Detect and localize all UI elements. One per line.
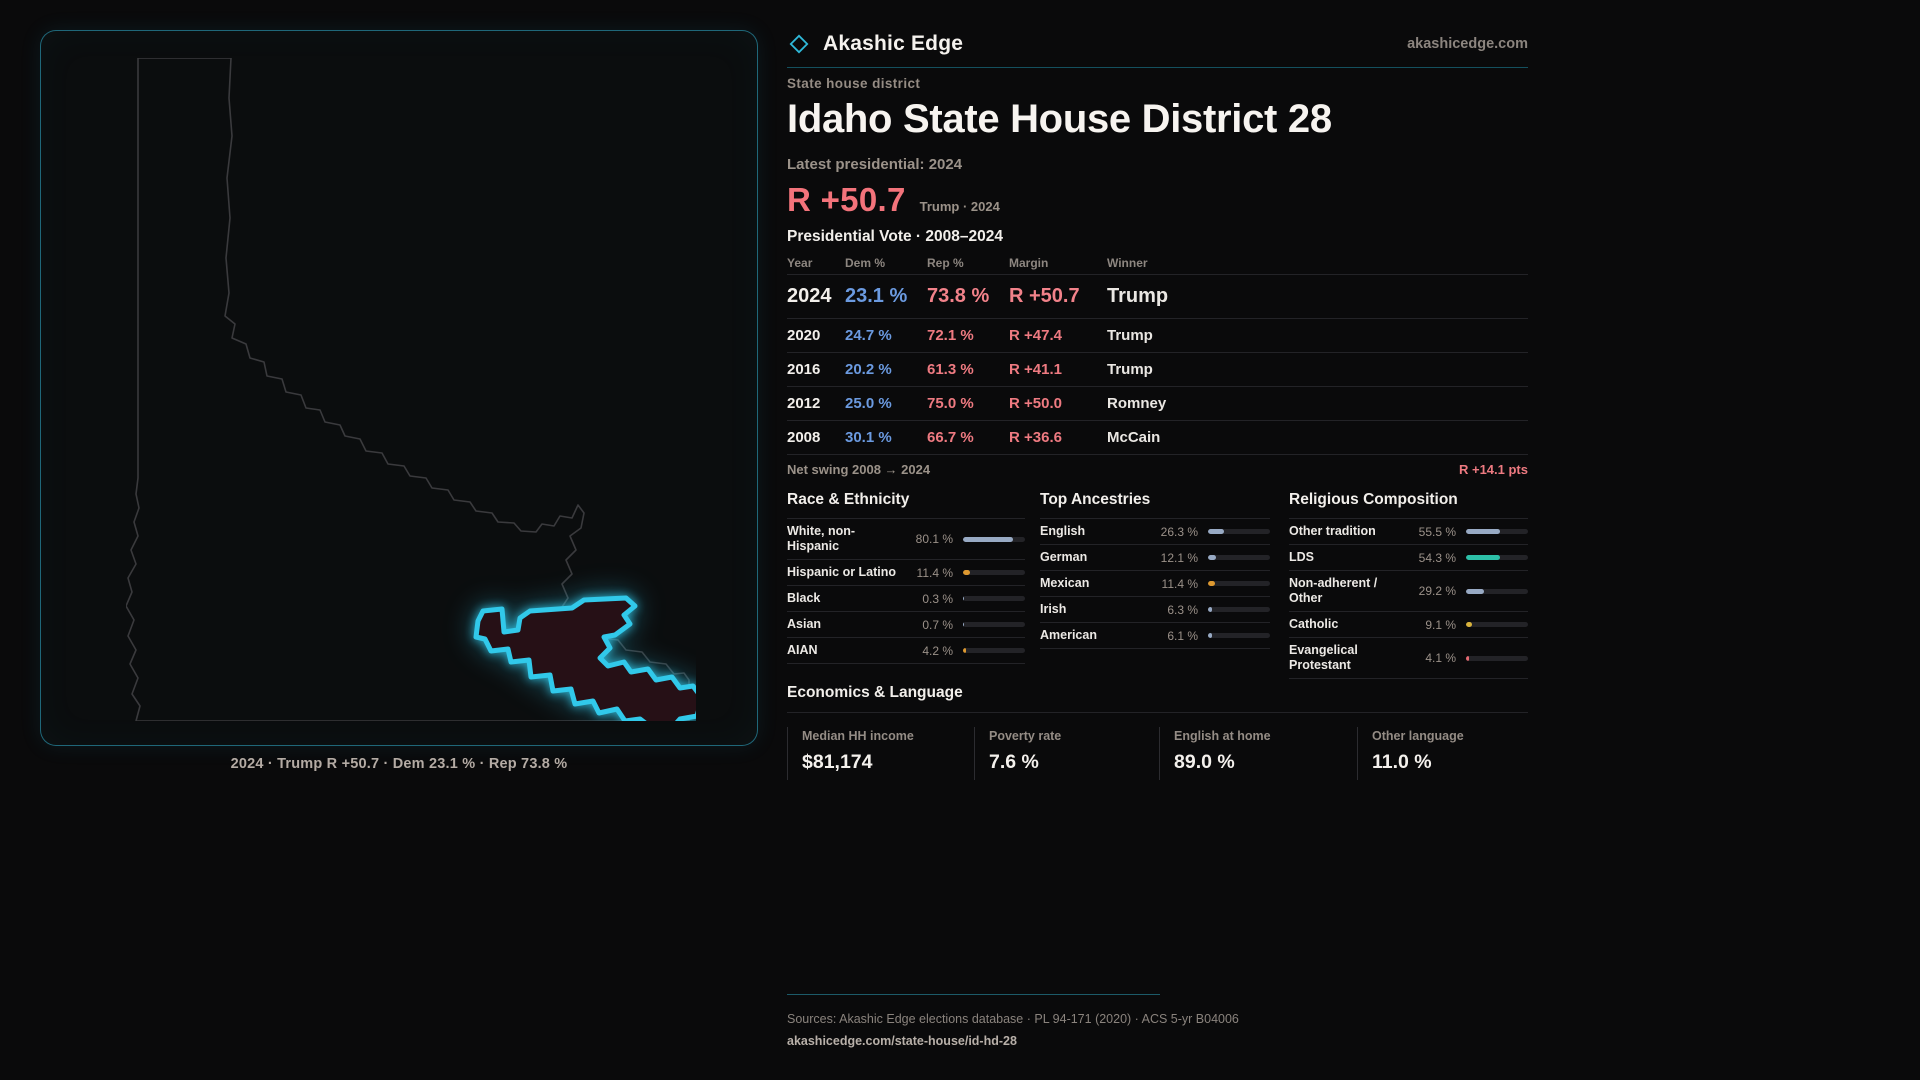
brand-name: Akashic Edge [823,32,963,56]
bar-track [1208,633,1270,638]
row-label: American [1040,628,1158,643]
stat-label: Median HH income [802,729,964,743]
map-panel [40,30,758,746]
stat-median-hh-income: Median HH income $81,174 [787,727,974,780]
list-item: English 26.3 % [1040,519,1270,545]
cell-rep: 73.8 % [927,285,1009,308]
cell-winner: McCain [1107,429,1528,446]
bar-fill [1466,529,1500,534]
stat-value: 89.0 % [1174,751,1347,774]
row-value: 6.1 % [1158,629,1208,643]
stats-row: Median HH income $81,174 Poverty rate 7.… [787,727,1528,780]
row-label: Evangelical Protestant [1289,643,1416,673]
row-value: 54.3 % [1416,551,1466,565]
cell-margin: R +50.0 [1009,395,1107,412]
list-item: White, non-Hispanic 80.1 % [787,519,1025,560]
diamond-icon [787,32,811,56]
net-swing-label: Net swing 2008 → 2024 [787,462,930,477]
row-value: 6.3 % [1158,603,1208,617]
bar-track [963,648,1025,653]
table-header: Year Dem % Rep % Margin Winner [787,252,1528,274]
row-label: LDS [1289,550,1416,565]
row-value: 4.1 % [1416,651,1466,665]
cell-dem: 20.2 % [845,361,927,378]
list-item: Evangelical Protestant 4.1 % [1289,638,1528,679]
sources-text: Sources: Akashic Edge elections database… [787,1012,1239,1026]
data-panel: Akashic Edge akashicedge.com State house… [787,0,1528,1080]
headline-margin: R +50.7 Trump · 2024 [787,181,1000,219]
margin-context: Trump · 2024 [920,199,1000,219]
row-value: 11.4 % [1158,577,1208,591]
cell-margin: R +50.7 [1009,285,1107,308]
table-row: 2016 20.2 % 61.3 % R +41.1 Trump [787,352,1528,386]
brand-header: Akashic Edge akashicedge.com [787,27,1528,61]
section-top-ancestries: Top Ancestries English 26.3 % German 12.… [1040,491,1270,679]
bar-fill [1466,589,1484,594]
bar-fill [1466,656,1469,661]
bar-track [1208,581,1270,586]
cell-year: 2024 [787,285,845,308]
bar-fill [1208,555,1216,560]
section-title: Race & Ethnicity [787,491,1025,519]
site-link[interactable]: akashicedge.com [1407,36,1528,52]
list-item: LDS 54.3 % [1289,545,1528,571]
map-caption: 2024 · Trump R +50.7 · Dem 23.1 % · Rep … [40,756,758,772]
bar-track [963,622,1025,627]
col-winner: Winner [1107,256,1528,270]
bar-track [1466,529,1528,534]
col-rep: Rep % [927,256,1009,270]
cell-margin: R +47.4 [1009,327,1107,344]
stat-label: Poverty rate [989,729,1149,743]
presidential-table: Year Dem % Rep % Margin Winner 2024 23.1… [787,252,1528,484]
row-label: Catholic [1289,617,1416,632]
cell-year: 2016 [787,361,845,378]
bar-track [963,570,1025,575]
latest-presidential-label: Latest presidential: 2024 [787,156,962,173]
list-item: Asian 0.7 % [787,612,1025,638]
section-religious-composition: Religious Composition Other tradition 55… [1289,491,1528,679]
footer-divider [787,994,1160,995]
row-label: AIAN [787,643,913,658]
cell-winner: Trump [1107,285,1528,308]
list-item: Other tradition 55.5 % [1289,519,1528,545]
section-title: Top Ancestries [1040,491,1270,519]
list-item: Catholic 9.1 % [1289,612,1528,638]
cell-rep: 61.3 % [927,361,1009,378]
stat-english-at-home: English at home 89.0 % [1159,727,1357,780]
row-label: Irish [1040,602,1158,617]
bar-fill [1208,633,1212,638]
list-item: Black 0.3 % [787,586,1025,612]
row-value: 55.5 % [1416,525,1466,539]
bar-track [1466,555,1528,560]
net-swing-row: Net swing 2008 → 2024 R +14.1 pts [787,454,1528,484]
list-item: Non-adherent / Other 29.2 % [1289,571,1528,612]
col-year: Year [787,256,845,270]
idaho-map [126,58,696,721]
bar-fill [963,570,970,575]
section-economics-language: Economics & Language Median HH income $8… [787,684,1528,780]
row-value: 9.1 % [1416,618,1466,632]
row-label: German [1040,550,1158,565]
bar-track [1208,529,1270,534]
section-title: Economics & Language [787,684,1528,713]
bar-track [1466,656,1528,661]
row-value: 80.1 % [913,532,963,546]
page-title: Idaho State House District 28 [787,97,1332,142]
stat-other-language: Other language 11.0 % [1357,727,1528,780]
stat-value: $81,174 [802,751,964,774]
row-value: 12.1 % [1158,551,1208,565]
bar-fill [1208,529,1224,534]
bar-track [963,596,1025,601]
net-swing-value: R +14.1 pts [1459,462,1528,477]
row-label: Hispanic or Latino [787,565,913,580]
cell-winner: Romney [1107,395,1528,412]
cell-dem: 25.0 % [845,395,927,412]
cell-margin: R +41.1 [1009,361,1107,378]
row-value: 0.3 % [913,592,963,606]
table-row: 2012 25.0 % 75.0 % R +50.0 Romney [787,386,1528,420]
row-label: English [1040,524,1158,539]
margin-value: R +50.7 [787,181,906,219]
section-title: Religious Composition [1289,491,1528,519]
row-value: 11.4 % [913,566,963,580]
row-value: 26.3 % [1158,525,1208,539]
demographics: Race & Ethnicity White, non-Hispanic 80.… [787,491,1528,679]
row-label: White, non-Hispanic [787,524,913,554]
row-value: 4.2 % [913,644,963,658]
bar-fill [1208,607,1212,612]
presidential-table-title: Presidential Vote · 2008–2024 [787,228,1003,246]
row-label: Mexican [1040,576,1158,591]
col-margin: Margin [1009,256,1107,270]
header-divider [787,67,1528,68]
stat-value: 7.6 % [989,751,1149,774]
table-row: 2024 23.1 % 73.8 % R +50.7 Trump [787,274,1528,318]
cell-dem: 24.7 % [845,327,927,344]
footer-url[interactable]: akashicedge.com/state-house/id-hd-28 [787,1034,1017,1048]
cell-winner: Trump [1107,361,1528,378]
cell-rep: 75.0 % [927,395,1009,412]
stat-label: Other language [1372,729,1518,743]
stat-value: 11.0 % [1372,751,1518,774]
bar-track [1466,622,1528,627]
list-item: German 12.1 % [1040,545,1270,571]
row-label: Black [787,591,913,606]
row-value: 0.7 % [913,618,963,632]
stat-poverty-rate: Poverty rate 7.6 % [974,727,1159,780]
row-label: Asian [787,617,913,632]
row-value: 29.2 % [1416,584,1466,598]
bar-fill [1208,581,1215,586]
bar-fill [963,648,966,653]
bar-fill [1466,622,1472,627]
cell-year: 2020 [787,327,845,344]
cell-margin: R +36.6 [1009,429,1107,446]
list-item: American 6.1 % [1040,623,1270,649]
cell-winner: Trump [1107,327,1528,344]
table-row: 2008 30.1 % 66.7 % R +36.6 McCain [787,420,1528,454]
row-label: Non-adherent / Other [1289,576,1416,606]
section-race-ethnicity: Race & Ethnicity White, non-Hispanic 80.… [787,491,1025,679]
bar-track [1208,607,1270,612]
bar-fill [963,537,1013,542]
col-dem: Dem % [845,256,927,270]
list-item: Mexican 11.4 % [1040,571,1270,597]
row-label: Other tradition [1289,524,1416,539]
cell-rep: 72.1 % [927,327,1009,344]
bar-track [1466,589,1528,594]
cell-year: 2012 [787,395,845,412]
list-item: Irish 6.3 % [1040,597,1270,623]
cell-year: 2008 [787,429,845,446]
cell-rep: 66.7 % [927,429,1009,446]
table-row: 2020 24.7 % 72.1 % R +47.4 Trump [787,318,1528,352]
stat-label: English at home [1174,729,1347,743]
list-item: Hispanic or Latino 11.4 % [787,560,1025,586]
list-item: AIAN 4.2 % [787,638,1025,664]
cell-dem: 23.1 % [845,285,927,308]
bar-fill [1466,555,1500,560]
bar-track [1208,555,1270,560]
bar-track [963,537,1025,542]
district-28-shape[interactable] [476,598,696,721]
cell-dem: 30.1 % [845,429,927,446]
category-label: State house district [787,76,920,91]
